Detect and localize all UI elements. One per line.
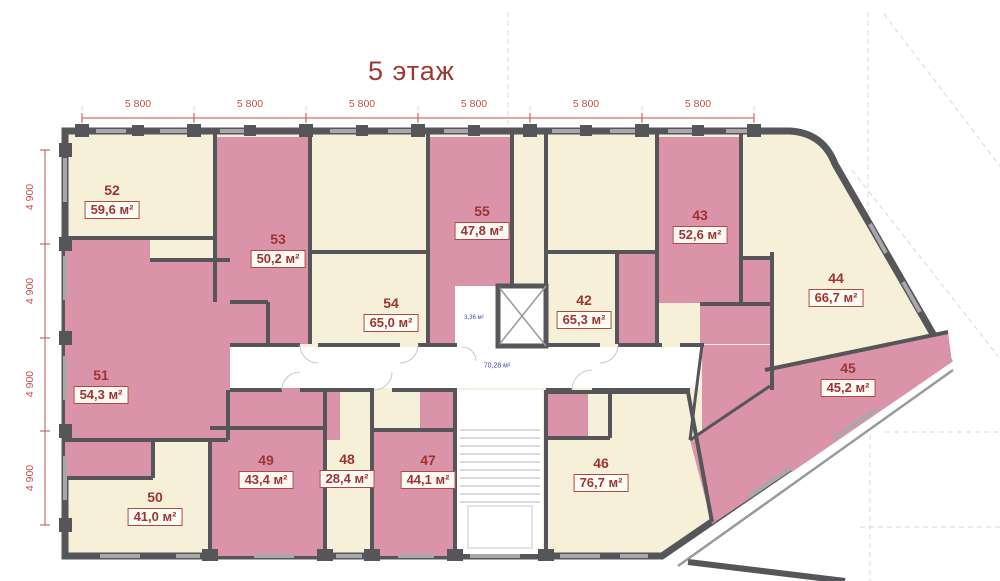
dimension-label-top-4: 5 800	[461, 98, 487, 110]
unit-label-44: 44 66,7 м²	[809, 270, 864, 308]
unit-label-53: 53 50,2 м²	[251, 231, 306, 269]
unit-label-42: 42 65,3 м²	[557, 292, 612, 330]
unit-number: 52	[85, 182, 140, 200]
dimension-label-top-5: 5 800	[573, 98, 599, 110]
unit-number: 51	[74, 367, 129, 385]
unit-label-54: 54 65,0 м²	[364, 295, 419, 333]
unit-area: 50,2 м²	[251, 250, 306, 268]
elevator-lobby-area-label: 3,36 м²	[464, 315, 483, 321]
unit-area: 45,2 м²	[821, 379, 876, 397]
unit-label-43: 43 52,6 м²	[673, 207, 728, 245]
unit-number: 53	[251, 231, 306, 249]
unit-area: 41,0 м²	[128, 508, 183, 526]
unit-number: 44	[809, 270, 864, 288]
unit-area: 54,3 м²	[74, 386, 129, 404]
corridor-area-label: 70,28 м²	[484, 363, 511, 370]
unit-number: 48	[320, 451, 375, 469]
dimension-label-left-2: 4 900	[24, 278, 36, 304]
unit-area: 28,4 м²	[320, 470, 375, 488]
dimension-label-top-3: 5 800	[349, 98, 375, 110]
unit-area: 44,1 м²	[401, 471, 456, 489]
unit-label-48: 48 28,4 м²	[320, 451, 375, 489]
unit-number: 47	[401, 452, 456, 470]
unit-label-49: 49 43,4 м²	[239, 452, 294, 490]
unit-area: 52,6 м²	[673, 226, 728, 244]
unit-number: 43	[673, 207, 728, 225]
unit-label-46: 46 76,7 м²	[574, 455, 629, 493]
dimension-label-top-6: 5 800	[685, 98, 711, 110]
elevator-shaft-icon	[498, 286, 546, 346]
unit-label-51: 51 54,3 м²	[74, 367, 129, 405]
dimension-label-left-3: 4 900	[24, 371, 36, 397]
unit-number: 45	[821, 360, 876, 378]
unit-area: 47,8 м²	[455, 222, 510, 240]
unit-area: 65,3 м²	[557, 311, 612, 329]
unit-number: 54	[364, 295, 419, 313]
unit-number: 55	[455, 203, 510, 221]
unit-area: 65,0 м²	[364, 314, 419, 332]
unit-label-45: 45 45,2 м²	[821, 360, 876, 398]
dimension-label-top-1: 5 800	[125, 98, 151, 110]
page-title: 5 этаж	[368, 56, 455, 87]
unit-number: 49	[239, 452, 294, 470]
unit-number: 50	[128, 489, 183, 507]
unit-area: 43,4 м²	[239, 471, 294, 489]
unit-label-52: 52 59,6 м²	[85, 182, 140, 220]
unit-label-47: 47 44,1 м²	[401, 452, 456, 490]
unit-area: 59,6 м²	[85, 201, 140, 219]
unit-label-55: 55 47,8 м²	[455, 203, 510, 241]
floorplan-canvas: 5 этаж 5 800 5 800 5 800 5 800 5 800 5 8…	[0, 0, 1000, 581]
dimension-label-left-4: 4 900	[24, 465, 36, 491]
dimension-label-left-1: 4 900	[24, 184, 36, 210]
dimension-label-top-2: 5 800	[237, 98, 263, 110]
unit-area: 66,7 м²	[809, 289, 864, 307]
unit-number: 42	[557, 292, 612, 310]
unit-number: 46	[574, 455, 629, 473]
unit-label-50: 50 41,0 м²	[128, 489, 183, 527]
unit-area: 76,7 м²	[574, 474, 629, 492]
